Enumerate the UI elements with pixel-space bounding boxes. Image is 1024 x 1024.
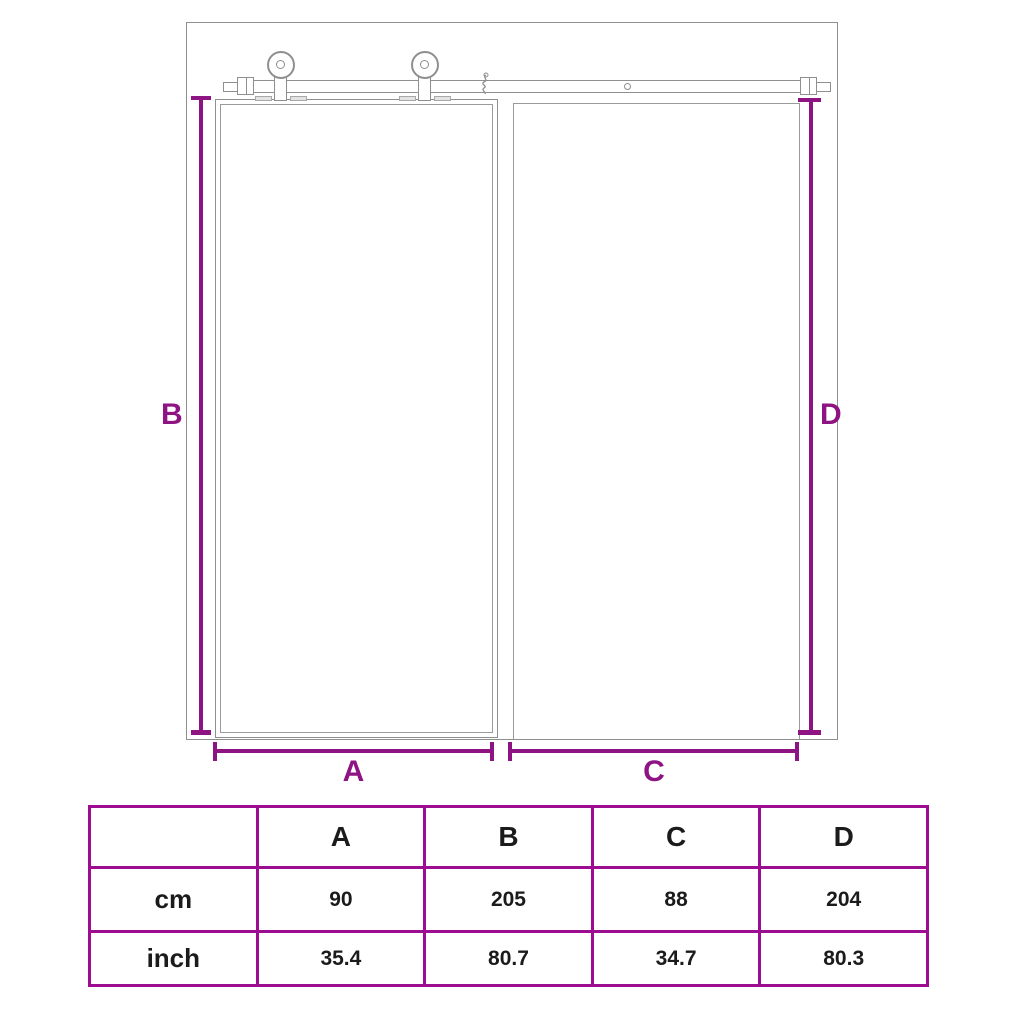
dim-label-a: A bbox=[214, 757, 493, 787]
table-header-d: D bbox=[760, 807, 928, 868]
dim-line-a bbox=[214, 749, 493, 753]
rail-screw-detail-icon bbox=[478, 72, 492, 96]
cell-cm-c: 88 bbox=[592, 868, 760, 932]
roller-hub-right bbox=[420, 60, 429, 69]
table-header-row: A B C D bbox=[90, 807, 928, 868]
dim-line-c bbox=[510, 749, 798, 753]
table-row-cm: cm 90 205 88 204 bbox=[90, 868, 928, 932]
bracket-divider bbox=[809, 78, 810, 94]
strap-mount-pad bbox=[434, 96, 451, 101]
cell-cm-a: 90 bbox=[257, 868, 425, 932]
rail-end-tip-right bbox=[816, 82, 831, 92]
rail-mounting-hole bbox=[624, 83, 631, 90]
dimension-table: A B C D cm 90 205 88 204 inch 35.4 80.7 … bbox=[88, 805, 929, 987]
cell-inch-d: 80.3 bbox=[760, 932, 928, 986]
cell-inch-a: 35.4 bbox=[257, 932, 425, 986]
cell-cm-b: 205 bbox=[425, 868, 593, 932]
door-panel bbox=[215, 99, 498, 738]
strap-mount-pad bbox=[255, 96, 272, 101]
dim-label-c: C bbox=[510, 757, 798, 787]
cell-inch-b: 80.7 bbox=[425, 932, 593, 986]
rail-end-bracket-right bbox=[800, 77, 817, 95]
table-header-c: C bbox=[592, 807, 760, 868]
table-corner-cell bbox=[90, 807, 258, 868]
dim-label-d: D bbox=[820, 400, 842, 430]
dim-cap-b-bottom bbox=[191, 730, 211, 735]
rail-end-tip-left bbox=[223, 82, 238, 92]
door-opening bbox=[513, 103, 800, 739]
dim-cap-d-bottom bbox=[798, 730, 821, 735]
dim-cap-b-top bbox=[191, 96, 211, 100]
cell-cm-d: 204 bbox=[760, 868, 928, 932]
table-header-b: B bbox=[425, 807, 593, 868]
door-panel-inner-frame bbox=[220, 104, 493, 733]
table-header-a: A bbox=[257, 807, 425, 868]
table-row-inch: inch 35.4 80.7 34.7 80.3 bbox=[90, 932, 928, 986]
rail-end-bracket-left bbox=[237, 77, 254, 95]
dim-label-b: B bbox=[161, 400, 183, 430]
row-label-inch: inch bbox=[90, 932, 258, 986]
cell-inch-c: 34.7 bbox=[592, 932, 760, 986]
product-dimension-diagram: B D A C A B C D cm 90 205 88 204 inch 35… bbox=[0, 0, 1024, 1024]
strap-mount-pad bbox=[290, 96, 307, 101]
dim-cap-d-top bbox=[798, 98, 821, 102]
row-label-cm: cm bbox=[90, 868, 258, 932]
bracket-divider bbox=[246, 78, 247, 94]
roller-hub-left bbox=[276, 60, 285, 69]
dim-line-d bbox=[809, 100, 813, 733]
sliding-rail bbox=[252, 80, 801, 93]
dim-line-b bbox=[199, 99, 203, 733]
strap-mount-pad bbox=[399, 96, 416, 101]
